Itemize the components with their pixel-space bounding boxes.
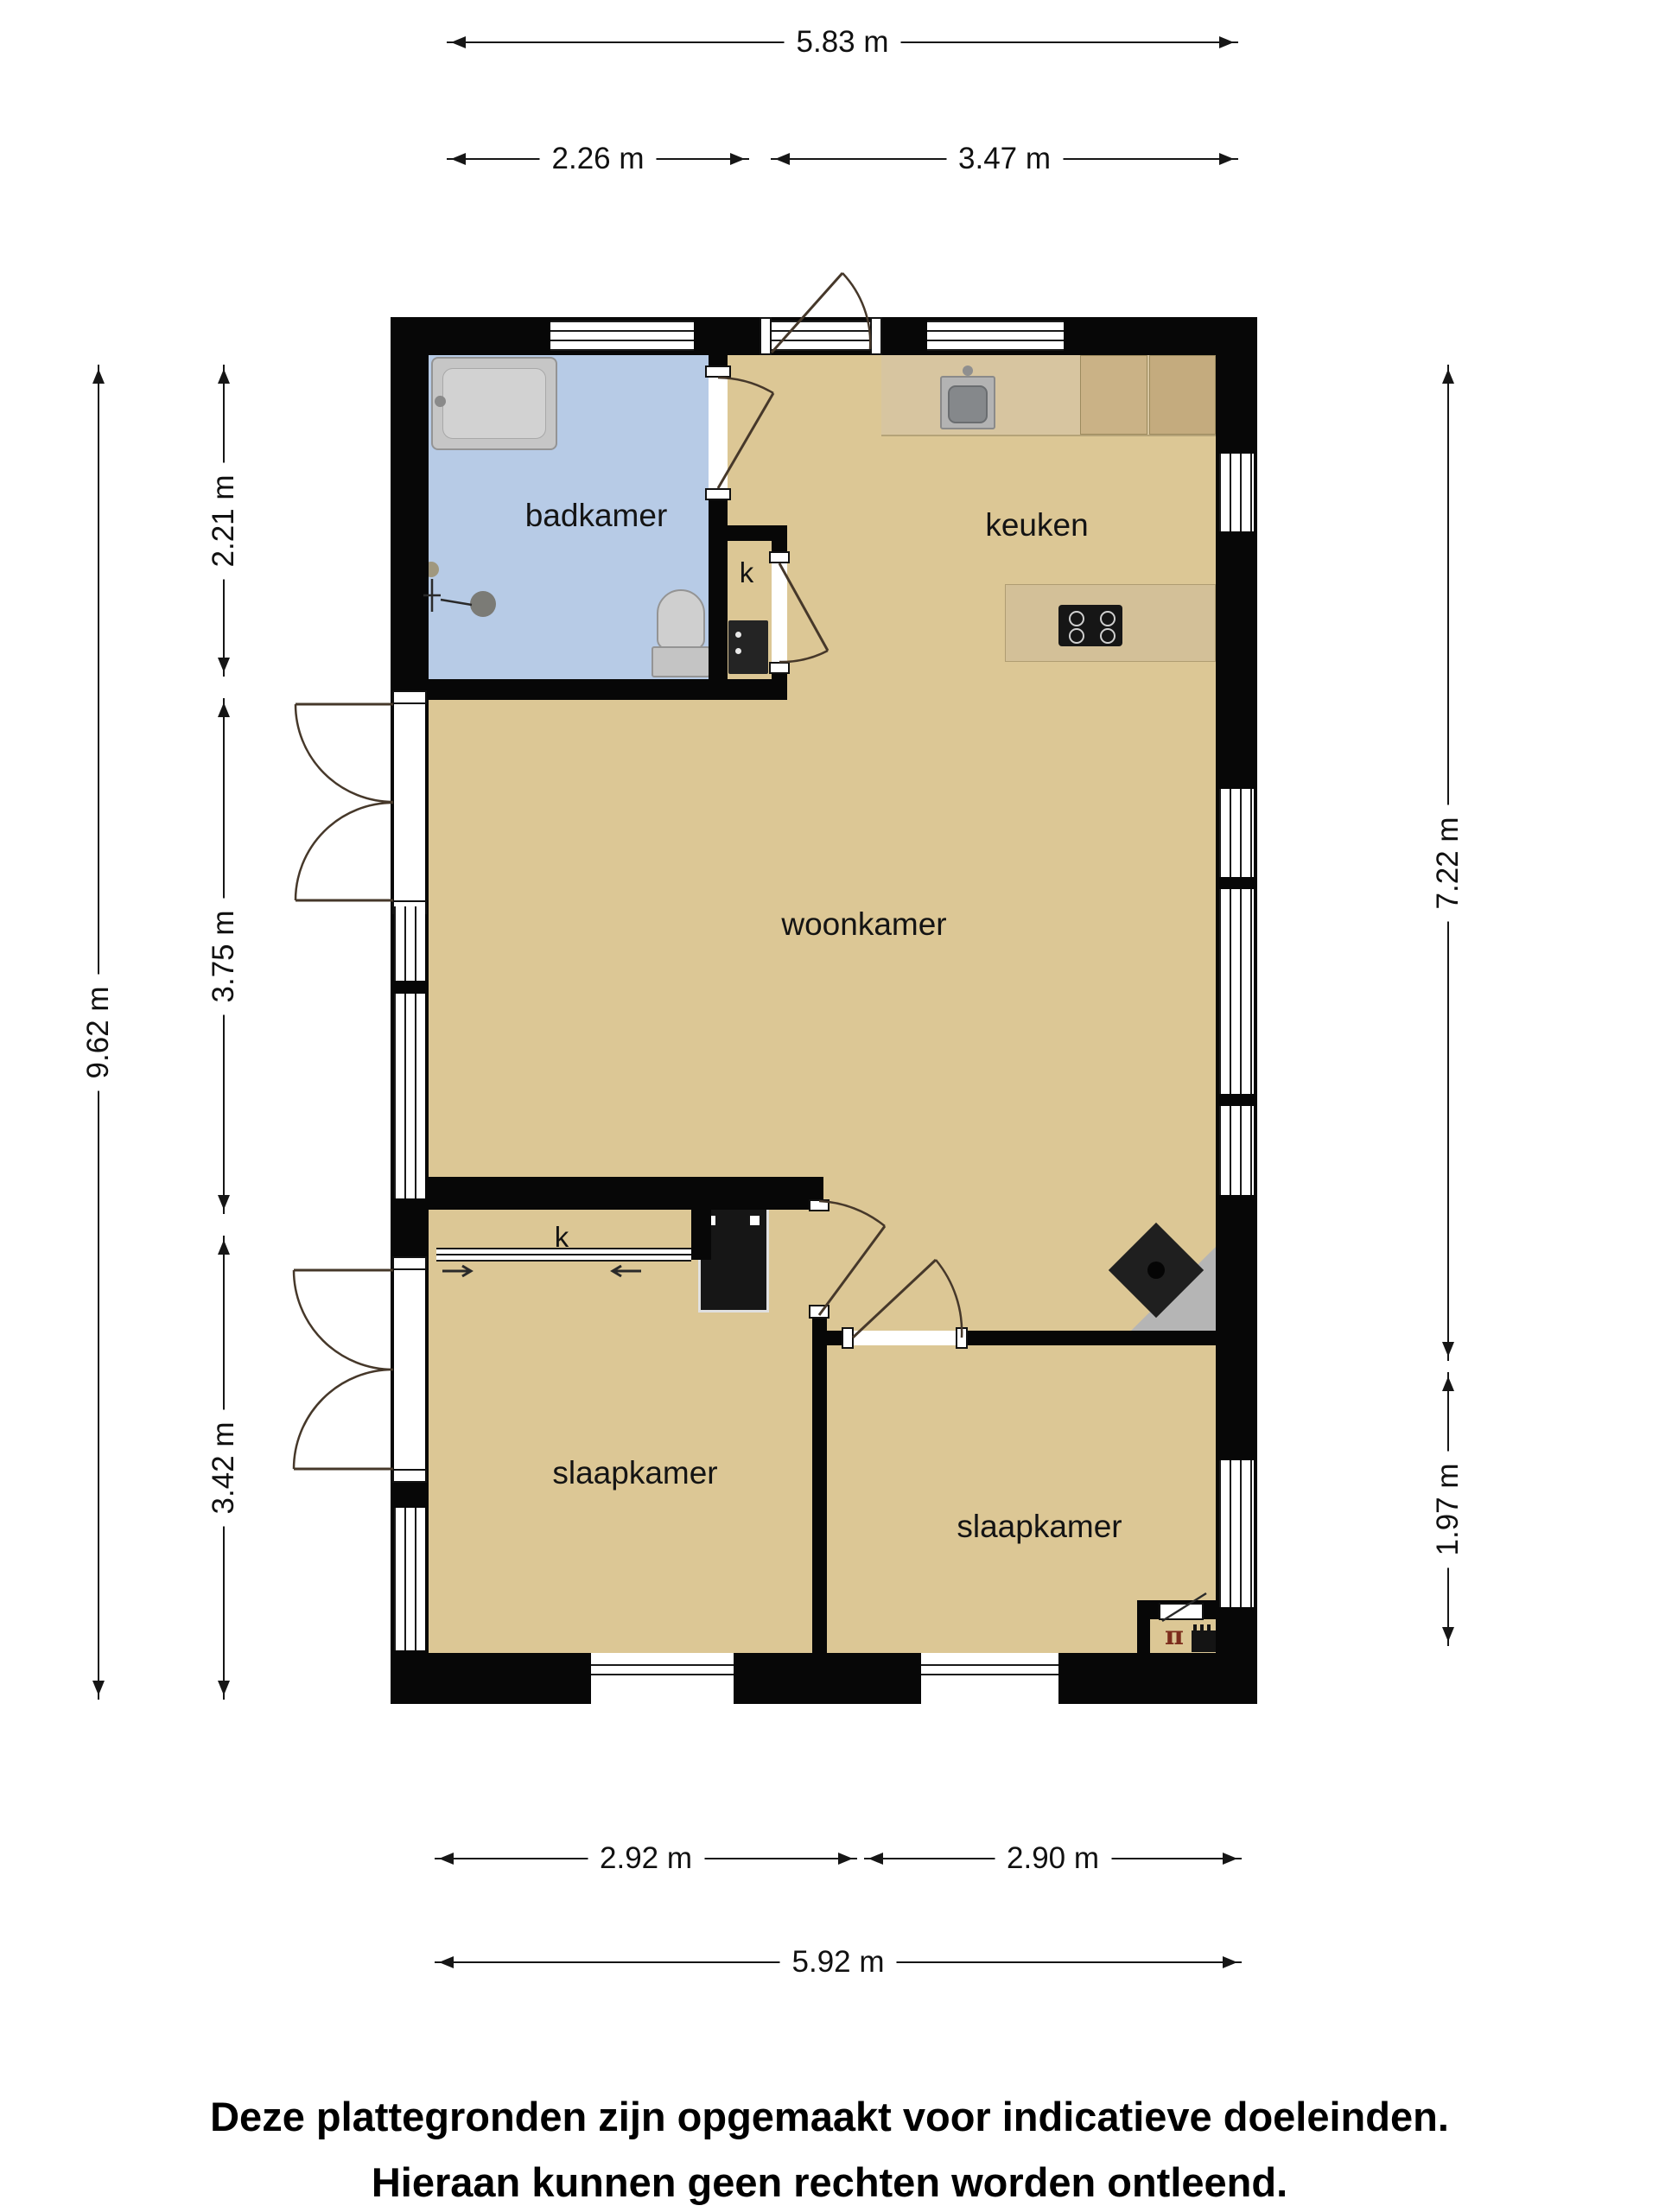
disclaimer-line1: Deze plattegronden zijn opgemaakt voor i…	[0, 2084, 1659, 2150]
dimension-width-total-top: 5.83 m	[447, 41, 1238, 43]
cooktop-burner	[1100, 611, 1116, 626]
window-kitchen-right	[1219, 454, 1254, 531]
dimension-height-bathroom: 2.21 m	[223, 365, 225, 677]
window-living-right	[1219, 789, 1254, 1195]
window-bedroom1-bottom	[591, 1664, 734, 1683]
meter-unit-fin	[1200, 1624, 1204, 1630]
floorplan-page: π	[0, 0, 1659, 2212]
cooktop-burner	[1069, 611, 1084, 626]
dimension-label: 2.26 m	[540, 140, 657, 178]
entrance-door-frame	[870, 317, 882, 355]
kitchen-cabinet	[1080, 355, 1147, 435]
dimension-label: 2.92 m	[588, 1840, 704, 1878]
window-bathroom-top	[550, 321, 694, 351]
bedroom2-door-frame	[842, 1327, 854, 1349]
boiler-unit	[728, 620, 768, 674]
closet1-door-frame	[769, 551, 790, 563]
dimension-label: 2.90 m	[995, 1840, 1111, 1878]
meter-unit-fin	[1193, 1624, 1197, 1630]
dimension-label: 5.92 m	[780, 1943, 897, 1981]
closet1-door-opening	[772, 563, 787, 662]
kitchen-sink-basin	[948, 385, 988, 423]
cooktop-burner	[1100, 628, 1116, 644]
window-bedroom2-bottom	[921, 1664, 1058, 1683]
dimension-label: 3.47 m	[946, 140, 1063, 178]
boiler-dot	[735, 632, 741, 638]
dimension-label: 3.42 m	[205, 1409, 243, 1526]
meter-unit	[1192, 1630, 1216, 1652]
room-label-bedroom2: slaapkamer	[957, 1509, 1122, 1545]
bathtub-basin	[442, 368, 546, 439]
bedroom1-door-frame	[809, 1305, 829, 1319]
dimension-height-right-upper: 7.22 m	[1447, 365, 1449, 1361]
dimension-label: 1.97 m	[1429, 1451, 1467, 1567]
disclaimer-line2: Hieraan kunnen geen rechten worden ontle…	[0, 2150, 1659, 2212]
room-label-living-room: woonkamer	[781, 906, 946, 943]
wall-closet1-top	[709, 525, 787, 541]
boiler-dot	[735, 648, 741, 654]
french-door-living-arc	[296, 803, 393, 900]
room-label-closet1: k	[740, 556, 754, 589]
toilet-tank	[652, 646, 710, 677]
french-door-living-arc	[296, 704, 393, 802]
kitchen-faucet-icon	[963, 365, 973, 376]
wood-stove-flue	[1147, 1262, 1165, 1279]
wall-bottom	[391, 1653, 1257, 1704]
bedroom2-door-opening	[849, 1331, 962, 1345]
crawl-space-tap: π	[1165, 1621, 1184, 1651]
dimension-height-bedrooms: 3.42 m	[223, 1236, 225, 1700]
window-mullion	[1219, 1094, 1254, 1106]
entrance-door-frame	[760, 317, 772, 355]
french-door-bedroom1-arc	[294, 1270, 393, 1370]
shower-head-icon	[470, 591, 496, 617]
bedroom2-door-frame	[956, 1327, 968, 1349]
french-door-bedroom1-arc	[294, 1370, 393, 1469]
window-kitchen-top	[927, 321, 1064, 351]
meter-unit-fin	[1207, 1624, 1211, 1630]
dimension-width-total-bottom: 5.92 m	[435, 1961, 1242, 1963]
wall-closet2-right	[691, 1210, 711, 1260]
dimension-height-right-lower: 1.97 m	[1447, 1372, 1449, 1646]
dimension-width-bedroom2: 2.90 m	[864, 1858, 1242, 1859]
room-label-kitchen: keuken	[985, 507, 1088, 543]
dimension-width-bathroom: 2.26 m	[447, 158, 749, 160]
wall-living-bedroom1	[391, 1177, 823, 1210]
dimension-height-living-mid: 3.75 m	[223, 698, 225, 1214]
disclaimer-text: Deze plattegronden zijn opgemaakt voor i…	[0, 2084, 1659, 2212]
window-bedroom2-right	[1219, 1460, 1254, 1607]
french-door-frame	[392, 1256, 427, 1270]
dimension-label: 7.22 m	[1429, 804, 1467, 921]
dimension-label: 2.21 m	[205, 462, 243, 579]
french-door-frame	[392, 690, 427, 704]
heater-dot	[750, 1216, 760, 1225]
entrance-door-glass	[772, 321, 870, 351]
dimension-width-bedroom1: 2.92 m	[435, 1858, 857, 1859]
wall-bathroom-bottom	[391, 679, 787, 700]
dimension-label: 9.62 m	[79, 974, 118, 1090]
french-door-frame	[392, 1469, 427, 1483]
bathroom-door-opening	[709, 378, 728, 488]
toilet-bowl	[657, 589, 705, 650]
dimension-height-total-left: 9.62 m	[98, 365, 99, 1700]
dimension-label: 5.83 m	[785, 23, 901, 61]
room-label-bathroom: badkamer	[525, 498, 668, 534]
french-door-opening-bedroom1	[394, 1270, 425, 1469]
dimension-label: 3.75 m	[205, 898, 243, 1014]
bathroom-door-frame	[705, 488, 731, 500]
window-living-left	[394, 994, 425, 1198]
wall-bedroom-divider	[812, 1317, 827, 1653]
dimension-width-kitchen: 3.47 m	[771, 158, 1238, 160]
window-living-left	[394, 906, 425, 981]
bathtub-faucet-icon	[435, 396, 446, 407]
bathroom-door-frame	[705, 365, 731, 378]
window-bedroom1-left	[394, 1508, 425, 1650]
niche-window	[1159, 1603, 1204, 1620]
room-label-bedroom1: slaapkamer	[552, 1455, 717, 1491]
room-label-closet2: k	[555, 1221, 569, 1254]
cooktop-burner	[1069, 628, 1084, 644]
wall-bedroom2-top	[962, 1331, 1216, 1345]
french-door-opening-living	[394, 704, 425, 900]
kitchen-cabinet	[1149, 355, 1216, 435]
bedroom1-door-frame	[809, 1199, 829, 1211]
window-mullion	[1219, 877, 1254, 889]
closet1-door-frame	[769, 662, 790, 674]
